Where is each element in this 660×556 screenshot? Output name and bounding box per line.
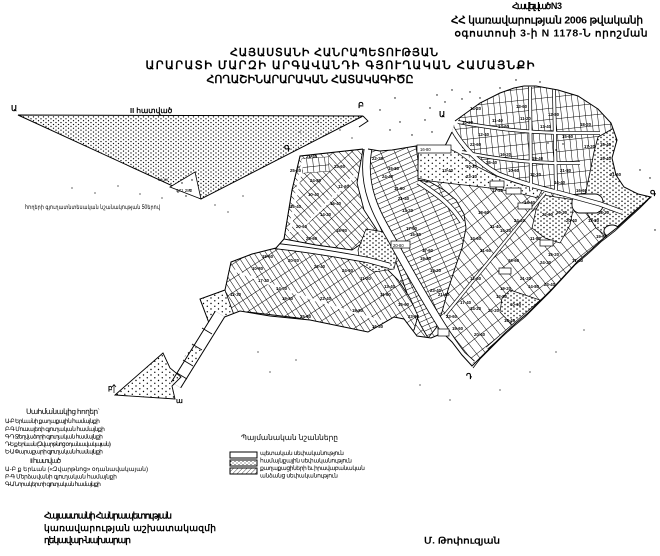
svg-text:18-80: 18-80: [352, 308, 364, 313]
svg-text:Ե-Ա Փարաքարի գյուղական համայնք: Ե-Ա Փարաքարի գյուղական համայնքի: [5, 449, 103, 456]
svg-text:Ա: Ա: [439, 110, 445, 119]
svg-text:Բ: Բ: [358, 101, 364, 110]
svg-text:16-60: 16-60: [508, 258, 520, 263]
svg-text:14-20: 14-20: [320, 212, 332, 217]
svg-text:22-40: 22-40: [320, 296, 332, 301]
svg-text:21-20: 21-20: [520, 276, 532, 281]
svg-text:22-20: 22-20: [488, 308, 500, 313]
svg-text:14-80: 14-80: [528, 284, 540, 289]
svg-text:21-40: 21-40: [398, 196, 410, 201]
svg-text:22-60: 22-60: [542, 212, 554, 217]
svg-text:17-20: 17-20: [584, 144, 596, 149]
svg-text:22-20: 22-20: [372, 156, 384, 161]
svg-text:18-60: 18-60: [262, 254, 274, 259]
svg-text:19-40: 19-40: [600, 156, 612, 161]
svg-text:II հատված: II հատված: [130, 105, 173, 115]
svg-text:21-60: 21-60: [610, 172, 622, 177]
svg-text:11-20: 11-20: [360, 276, 371, 281]
svg-text:12-30: 12-30: [230, 292, 242, 297]
svg-text:քաղաքացիների եւ իրավաբանական: քաղաքացիների եւ իրավաբանական: [260, 465, 365, 472]
svg-text:14-20: 14-20: [470, 306, 482, 311]
svg-text:21-60: 21-60: [480, 248, 492, 253]
svg-text:Ա-Բ Երևանի քաղաքային համայնքի: Ա-Բ Երևանի քաղաքային համայնքի: [5, 418, 100, 425]
svg-text:21-40: 21-40: [438, 292, 450, 297]
svg-text:19-40: 19-40: [532, 156, 544, 161]
svg-text:17-40: 17-40: [572, 258, 584, 263]
svg-text:24-60: 24-60: [342, 268, 354, 273]
svg-text:24-80: 24-80: [310, 178, 322, 183]
svg-text:ՀՈՂԱՇԻՆԱՐԱՐԱԿԱՆ ՀԱՏԱԿԱԳԻԾԸ: ՀՈՂԱՇԻՆԱՐԱՐԱԿԱՆ ՀԱՏԱԿԱԳԻԾԸ: [207, 74, 414, 86]
svg-text:15-80: 15-80: [388, 166, 400, 171]
svg-text:անձանց սեփականություն: անձանց սեփականություն: [260, 473, 338, 480]
svg-text:13-20: 13-20: [402, 208, 414, 213]
svg-text:15-40: 15-40: [600, 142, 612, 147]
svg-text:Պայմանական նշանները: Պայմանական նշանները: [241, 433, 338, 442]
svg-text:17-60: 17-60: [406, 226, 418, 231]
svg-text:Ա: Ա: [11, 104, 17, 113]
svg-text:Դ: Դ: [466, 372, 472, 381]
svg-text:17-40: 17-40: [460, 300, 472, 305]
svg-text:18-60: 18-60: [478, 210, 490, 215]
svg-text:Մ. Թոփուզյան: Մ. Թոփուզյան: [424, 536, 500, 547]
svg-text:10-60: 10-60: [508, 168, 520, 173]
svg-text:20-60: 20-60: [306, 236, 318, 241]
svg-text:15-20: 15-20: [500, 228, 512, 233]
svg-text:11-60: 11-60: [394, 186, 405, 191]
svg-text:կառավարության աշխատակազմի: կառավարության աշխատակազմի: [44, 523, 216, 534]
svg-text:19-20: 19-20: [430, 268, 442, 273]
svg-text:11-40: 11-40: [492, 118, 503, 123]
svg-text:II հատված: II հատված: [30, 457, 61, 465]
svg-text:13-60: 13-60: [470, 236, 482, 241]
svg-text:25-20: 25-20: [290, 168, 302, 173]
svg-text:10-20: 10-20: [466, 164, 478, 169]
svg-text:15-60: 15-60: [452, 326, 464, 331]
svg-text:20-20: 20-20: [556, 210, 568, 215]
svg-text:19-80: 19-80: [420, 256, 432, 261]
svg-text:Ա-Բ ք Երևան («Զվարթնոց» օդանավ: Ա-Բ ք Երևան («Զվարթնոց» օդանավակայան): [5, 466, 148, 473]
svg-text:Գ-Դ Ջեղվաձորի գյուղական համայն: Գ-Դ Ջեղվաձորի գյուղական համայնքի: [5, 433, 103, 440]
svg-text:20-20: 20-20: [288, 258, 300, 263]
svg-text:22-40: 22-40: [314, 264, 326, 269]
svg-text:21-40: 21-40: [306, 154, 318, 159]
svg-text:Սահմանակից հողեր`: Սահմանակից հողեր`: [26, 407, 100, 416]
svg-text:Հայաստանի Հանրապետության: Հայաստանի Հանրապետության: [44, 511, 172, 522]
svg-text:13-80: 13-80: [588, 218, 600, 223]
svg-text:25-40: 25-40: [486, 160, 498, 165]
svg-text:14-40: 14-40: [524, 200, 536, 205]
svg-text:16-20: 16-20: [500, 152, 512, 157]
svg-text:18-20: 18-20: [598, 210, 610, 215]
svg-text:14-60: 14-60: [498, 124, 510, 129]
svg-text:20-40: 20-40: [474, 332, 486, 337]
svg-text:10-20: 10-20: [462, 120, 474, 125]
svg-text:15-20: 15-20: [548, 252, 560, 257]
svg-text:16-40: 16-40: [290, 204, 302, 209]
svg-text:18-20: 18-20: [580, 122, 592, 127]
svg-text:10-40: 10-40: [308, 192, 320, 197]
svg-text:12-80: 12-80: [496, 294, 508, 299]
svg-text:16-60: 16-60: [576, 188, 588, 193]
svg-text:13-40: 13-40: [384, 284, 396, 289]
svg-text:պետական սեփականություն: պետական սեփականություն: [260, 450, 344, 457]
svg-text:19-40: 19-40: [282, 296, 294, 301]
svg-text:11-80: 11-80: [530, 236, 541, 241]
svg-text:22-60: 22-60: [470, 142, 482, 147]
svg-text:օգոստոսի 3-ի N 1178-Ն որոշման: օգոստոսի 3-ի N 1178-Ն որոշման: [455, 28, 648, 40]
svg-text:12-80: 12-80: [548, 112, 560, 117]
svg-text:13-40: 13-40: [442, 168, 454, 173]
svg-text:16-40: 16-40: [504, 318, 516, 323]
svg-text:20-80: 20-80: [393, 243, 404, 248]
svg-text:16-30: 16-30: [372, 324, 384, 329]
svg-text:50-80: 50-80: [158, 177, 169, 182]
svg-text:12-40: 12-40: [478, 132, 490, 137]
svg-text:14-40: 14-40: [554, 180, 566, 185]
svg-text:23-20: 23-20: [466, 174, 478, 179]
svg-text:23-80: 23-80: [408, 314, 420, 319]
svg-text:16-40: 16-40: [330, 201, 342, 206]
svg-text:20-40: 20-40: [566, 218, 578, 223]
svg-text:17-20: 17-20: [258, 278, 270, 283]
svg-text:15-60: 15-60: [398, 302, 410, 307]
svg-text:12-60: 12-60: [338, 184, 350, 189]
svg-text:19-20: 19-20: [500, 286, 512, 291]
svg-text:17-60: 17-60: [422, 248, 434, 253]
svg-text:23-40: 23-40: [544, 282, 556, 287]
svg-text:Դ-Ե ք Երևան (Զվարթնոց օդանավակ: Դ-Ե ք Երևան (Զվարթնոց օդանավակայան): [5, 441, 111, 448]
svg-text:11-60: 11-60: [380, 292, 391, 297]
svg-text:Բ-Գ Մերձավանի գյուղական համայն: Բ-Գ Մերձավանի գյուղական համայնքի: [5, 473, 117, 480]
svg-text:12-60: 12-60: [470, 276, 482, 281]
svg-text:համայնքային սեփականություն: համայնքային սեփականություն: [260, 458, 352, 465]
svg-text:11-20: 11-20: [520, 116, 531, 121]
svg-text:15-60: 15-60: [562, 134, 574, 139]
svg-text:ա: ա: [176, 398, 183, 405]
svg-text:20-60: 20-60: [296, 224, 308, 229]
svg-text:21-80: 21-80: [560, 168, 572, 173]
svg-text:17-80: 17-80: [492, 188, 504, 193]
svg-text:ղեկավար-նախարար: ղեկավար-նախարար: [44, 535, 131, 546]
svg-text:Բ-Գ Մուսալեռի գյուղական համայն: Բ-Գ Մուսալեռի գյուղական համայնքի: [5, 426, 105, 433]
svg-text:11-40: 11-40: [490, 224, 501, 229]
svg-text:24-20: 24-20: [540, 260, 552, 265]
svg-text:հողերի գյուղատնտեսական նշանակո: հողերի գյուղատնտեսական նշանակության 50եր…: [25, 204, 160, 211]
svg-text:Գ-Ա Նորակերտի գյուղական համայն: Գ-Ա Նորակերտի գյուղական համայնքի: [5, 481, 101, 488]
svg-text:Գ: Գ: [284, 144, 290, 153]
svg-text:19-60: 19-60: [596, 234, 608, 239]
svg-text:10-60: 10-60: [510, 302, 522, 307]
svg-text:Հավելված N 3: Հավելված N 3: [512, 1, 562, 12]
svg-text:ՀԱՅԱՍՏԱՆԻ ՀԱՆՐԱՊԵՏՈՒԹՅԱՆ: ՀԱՅԱՍՏԱՆԻ ՀԱՆՐԱՊԵՏՈՒԹՅԱՆ: [230, 47, 438, 59]
svg-text:23-60: 23-60: [446, 314, 458, 319]
svg-text:24-40: 24-40: [382, 174, 394, 179]
svg-text:23-60: 23-60: [334, 164, 346, 169]
svg-text:15-40: 15-40: [410, 232, 422, 237]
svg-text:14-60: 14-60: [276, 286, 288, 291]
svg-text:471 282: 471 282: [176, 188, 193, 193]
svg-text:ՀՀ կառավարության 2006 թվականի: ՀՀ կառավարության 2006 թվականի: [451, 15, 643, 27]
svg-text:10-80: 10-80: [252, 266, 264, 271]
svg-text:14-20: 14-20: [470, 106, 482, 111]
svg-text:բ: բ: [108, 385, 112, 392]
svg-text:18-80: 18-80: [336, 228, 348, 233]
svg-text:13-40: 13-40: [540, 124, 552, 129]
svg-text:13-60: 13-60: [516, 104, 528, 109]
svg-text:25-60: 25-60: [300, 314, 312, 319]
svg-text:12-20: 12-20: [530, 172, 542, 177]
svg-text:ԱՐԱՐԱՏԻ ՄԱՐԶԻ ԱՐԳԱՎԱՆԴԻ ԳՅՈՒՂԱ: ԱՐԱՐԱՏԻ ՄԱՐԶԻ ԱՐԳԱՎԱՆԴԻ ԳՅՈՒՂԱԿԱՆ ՀԱՄԱՅՆ…: [146, 59, 536, 72]
svg-text:24-20: 24-20: [514, 218, 526, 223]
svg-text:16-80: 16-80: [420, 147, 431, 152]
svg-text:Գ: Գ: [650, 189, 656, 198]
